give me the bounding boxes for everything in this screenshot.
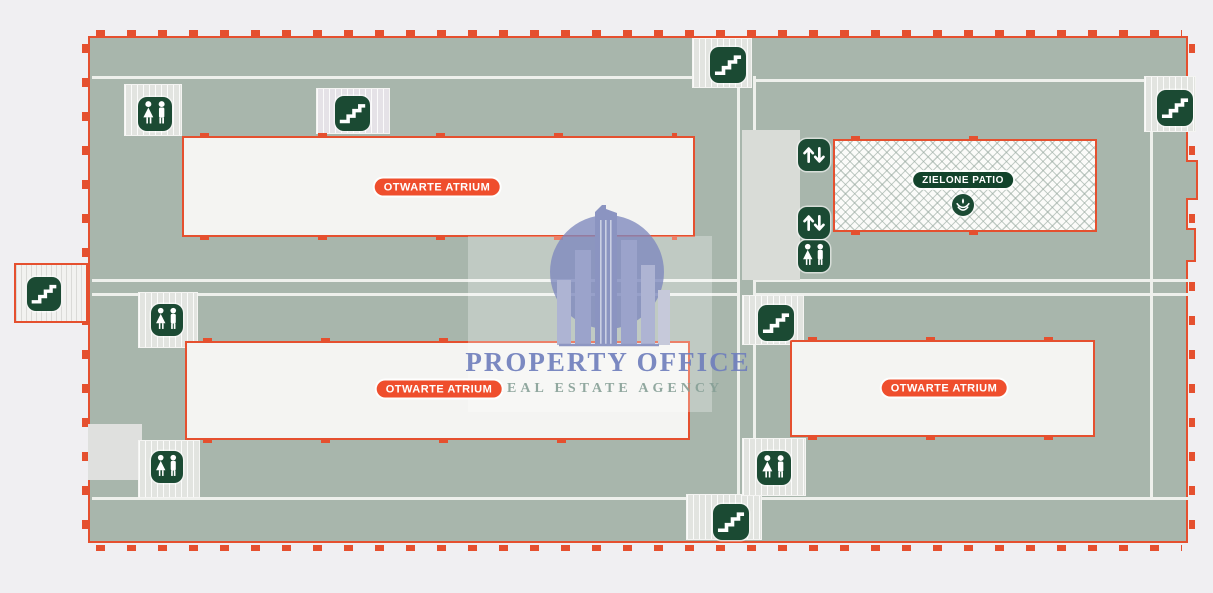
plant-icon (952, 194, 974, 216)
facade-bump (1186, 228, 1196, 262)
atrium-label: OTWARTE ATRIUM (882, 380, 1007, 397)
wc-icon (138, 97, 172, 131)
patio-label: ZIELONE PATIO (913, 172, 1013, 188)
watermark-title: PROPERTY OFFICE (455, 347, 761, 378)
elevator-icon (798, 139, 830, 171)
corridor-line (92, 76, 740, 79)
corridor-line (754, 293, 1190, 296)
stairs-icon (27, 277, 61, 311)
wc-icon (757, 451, 791, 485)
stairs-icon (1157, 90, 1193, 126)
service-area (742, 130, 800, 280)
corridor-line (737, 76, 740, 500)
corridor-line (754, 79, 1190, 82)
facade-notches-top (96, 30, 1182, 36)
stairs-icon (335, 96, 370, 131)
atrium-label: OTWARTE ATRIUM (375, 179, 500, 196)
elevator-icon (798, 207, 830, 239)
watermark-buildings (545, 198, 675, 348)
floorplan-canvas: PROPERTY OFFICE REAL ESTATE AGENCY OTWAR… (0, 0, 1213, 593)
wc-icon (151, 451, 183, 483)
corridor-line (92, 497, 1190, 500)
stairs-icon (710, 47, 746, 83)
atrium-label: OTWARTE ATRIUM (377, 381, 502, 398)
wc-icon (151, 304, 183, 336)
facade-notches-bottom (96, 545, 1182, 551)
wc-icon (798, 240, 830, 272)
stairs-icon (758, 305, 794, 341)
stairs-icon (713, 504, 749, 540)
corridor-line (1150, 79, 1153, 500)
facade-bump (1186, 160, 1198, 200)
service-area (88, 424, 142, 480)
corridor-line (754, 279, 1190, 282)
